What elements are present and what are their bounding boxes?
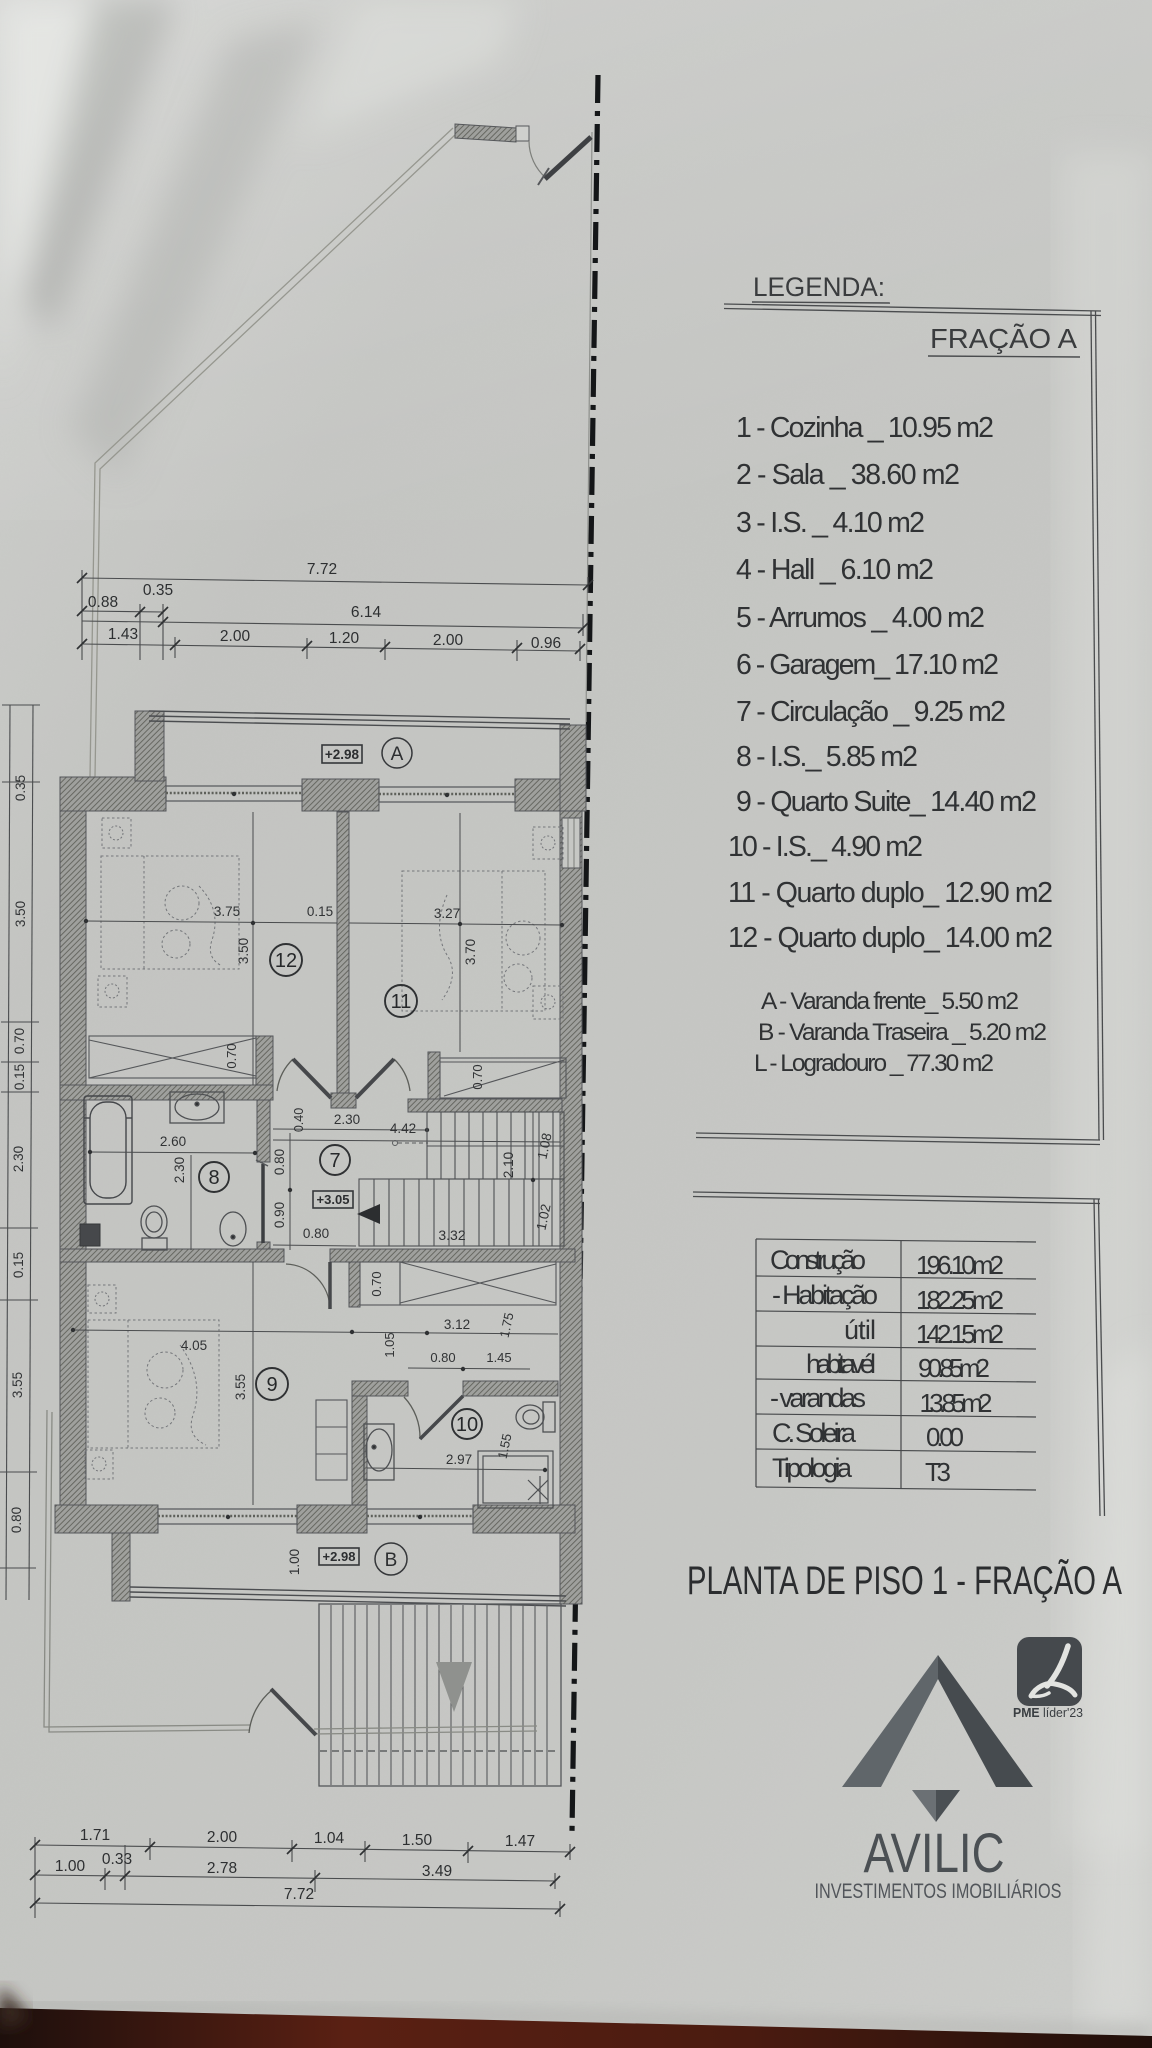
- svg-text:0.80: 0.80: [9, 1507, 24, 1533]
- svg-text:3.55: 3.55: [233, 1374, 248, 1400]
- svg-text:8 - I.S._ 5.85 m2: 8 - I.S._ 5.85 m2: [736, 741, 918, 773]
- svg-text:0.35: 0.35: [143, 582, 173, 599]
- svg-text:2.00: 2.00: [207, 1829, 238, 1846]
- svg-text:2.30: 2.30: [11, 1146, 26, 1172]
- svg-text:0.70: 0.70: [224, 1043, 239, 1068]
- svg-text:90.85m2: 90.85m2: [918, 1353, 990, 1383]
- svg-text:2.97: 2.97: [446, 1452, 472, 1467]
- svg-text:1.04: 1.04: [314, 1830, 345, 1847]
- svg-text:+2.98: +2.98: [323, 1549, 356, 1564]
- svg-text:4.42: 4.42: [390, 1121, 416, 1136]
- svg-text:6.14: 6.14: [351, 604, 382, 621]
- svg-text:LEGENDA:: LEGENDA:: [753, 272, 885, 302]
- svg-text:0.15: 0.15: [307, 904, 333, 919]
- svg-text:AVILIC: AVILIC: [864, 1821, 1005, 1884]
- svg-text:11 - Quarto duplo_ 12.90 m2: 11 - Quarto duplo_ 12.90 m2: [728, 877, 1053, 909]
- svg-text:2.10: 2.10: [501, 1152, 516, 1178]
- svg-text:3.50: 3.50: [236, 938, 251, 964]
- svg-text:9: 9: [266, 1374, 277, 1396]
- svg-text:Tipologia: Tipologia: [772, 1453, 853, 1483]
- svg-text:0.70: 0.70: [470, 1064, 485, 1089]
- svg-text:7.72: 7.72: [307, 561, 337, 578]
- svg-text:PME líder'23: PME líder'23: [1013, 1706, 1083, 1720]
- svg-text:3.27: 3.27: [434, 906, 460, 921]
- svg-text:10 - I.S._ 4.90 m2: 10 - I.S._ 4.90 m2: [728, 831, 923, 863]
- svg-text:7: 7: [329, 1150, 340, 1172]
- svg-text:0.90: 0.90: [272, 1202, 287, 1228]
- svg-text:2 - Sala _ 38.60 m2: 2 - Sala _ 38.60 m2: [736, 459, 960, 491]
- svg-text:1.20: 1.20: [329, 630, 360, 647]
- svg-text:1.05: 1.05: [382, 1332, 397, 1357]
- svg-text:3.55: 3.55: [10, 1372, 25, 1398]
- svg-text:0.80: 0.80: [272, 1149, 287, 1175]
- svg-text:1.50: 1.50: [402, 1832, 433, 1849]
- svg-text:2.30: 2.30: [172, 1157, 187, 1183]
- svg-text:2.78: 2.78: [207, 1860, 237, 1877]
- svg-text:- Habitação: - Habitação: [772, 1280, 878, 1310]
- svg-text:142.15m2: 142.15m2: [916, 1319, 1004, 1349]
- svg-text:Construção: Construção: [770, 1245, 866, 1275]
- svg-text:1.00: 1.00: [287, 1549, 302, 1575]
- svg-text:3.12: 3.12: [444, 1317, 470, 1332]
- svg-text:0.00: 0.00: [926, 1422, 964, 1452]
- svg-text:2.00: 2.00: [433, 632, 464, 649]
- svg-text:13.85m2: 13.85m2: [920, 1388, 993, 1418]
- svg-text:+2.98: +2.98: [325, 747, 360, 762]
- svg-text:0.33: 0.33: [102, 1851, 132, 1868]
- svg-text:- varandas: - varandas: [770, 1383, 866, 1413]
- svg-text:0.40: 0.40: [292, 1108, 306, 1132]
- svg-text:B - Varanda Traseira _ 5.20 m2: B - Varanda Traseira _ 5.20 m2: [758, 1019, 1047, 1046]
- svg-text:1.43: 1.43: [108, 626, 138, 643]
- svg-text:10: 10: [456, 1414, 478, 1436]
- svg-text:0.80: 0.80: [303, 1226, 329, 1241]
- svg-text:0.80: 0.80: [430, 1350, 455, 1365]
- svg-text:7 - Circulação _ 9.25 m2: 7 - Circulação _ 9.25 m2: [736, 696, 1006, 728]
- svg-text:PLANTA DE PISO 1 - FRAÇÃO A: PLANTA DE PISO 1 - FRAÇÃO A: [687, 1558, 1122, 1603]
- svg-text:0.15: 0.15: [11, 1252, 26, 1278]
- svg-text:0.88: 0.88: [88, 594, 118, 611]
- svg-text:2.30: 2.30: [334, 1112, 360, 1127]
- svg-text:4.05: 4.05: [181, 1338, 207, 1353]
- svg-text:0.35: 0.35: [13, 775, 28, 801]
- svg-text:5 - Arrumos _ 4.00 m2: 5 - Arrumos _ 4.00 m2: [736, 602, 985, 634]
- svg-text:3.49: 3.49: [422, 1863, 452, 1880]
- svg-text:habitavél: habitavél: [806, 1349, 876, 1379]
- svg-text:3.50: 3.50: [13, 901, 28, 927]
- svg-text:1.45: 1.45: [486, 1350, 511, 1365]
- svg-text:1.00: 1.00: [55, 1858, 86, 1875]
- svg-text:+3.05: +3.05: [317, 1192, 350, 1207]
- svg-text:L - Logradouro _ 77.30 m2: L - Logradouro _ 77.30 m2: [754, 1050, 994, 1077]
- svg-text:182.25m2: 182.25m2: [916, 1285, 1004, 1315]
- svg-text:8: 8: [208, 1167, 219, 1189]
- svg-text:1 - Cozinha _ 10.95 m2: 1 - Cozinha _ 10.95 m2: [736, 412, 994, 444]
- svg-text:2.60: 2.60: [160, 1134, 186, 1149]
- svg-text:3 - I.S. _ 4.10 m2: 3 - I.S. _ 4.10 m2: [736, 507, 925, 539]
- svg-text:3.75: 3.75: [214, 904, 240, 919]
- svg-text:1.71: 1.71: [80, 1827, 110, 1844]
- svg-text:0.70: 0.70: [369, 1271, 384, 1296]
- svg-text:B: B: [385, 1550, 398, 1571]
- svg-text:3.70: 3.70: [463, 939, 478, 965]
- svg-text:7.72: 7.72: [284, 1886, 314, 1903]
- svg-text:A: A: [391, 744, 404, 765]
- svg-text:196.10m2: 196.10m2: [916, 1250, 1004, 1280]
- svg-text:C. Soleira: C. Soleira: [772, 1418, 857, 1448]
- svg-text:INVESTIMENTOS IMOBILIÁRIOS: INVESTIMENTOS IMOBILIÁRIOS: [815, 1878, 1062, 1903]
- svg-text:0.70: 0.70: [12, 1028, 27, 1054]
- svg-text:0.96: 0.96: [531, 635, 561, 652]
- svg-text:2.00: 2.00: [220, 628, 251, 645]
- svg-text:útil: útil: [844, 1315, 876, 1345]
- svg-text:1.47: 1.47: [505, 1833, 535, 1850]
- svg-text:0.15: 0.15: [12, 1064, 27, 1090]
- svg-text:6 - Garagem_ 17.10 m2: 6 - Garagem_ 17.10 m2: [736, 649, 999, 681]
- svg-text:A - Varanda frente_ 5.50 m2: A - Varanda frente_ 5.50 m2: [761, 988, 1019, 1015]
- svg-text:11: 11: [391, 991, 412, 1013]
- svg-text:T3: T3: [925, 1457, 951, 1487]
- svg-text:9 - Quarto Suite_ 14.40 m2: 9 - Quarto Suite_ 14.40 m2: [736, 786, 1037, 818]
- svg-text:12 - Quarto duplo_ 14.00 m2: 12 - Quarto duplo_ 14.00 m2: [728, 922, 1053, 954]
- svg-text:FRAÇÃO A: FRAÇÃO A: [930, 323, 1077, 354]
- svg-text:12: 12: [275, 950, 297, 972]
- svg-text:4 - Hall _ 6.10 m2: 4 - Hall _ 6.10 m2: [736, 554, 934, 586]
- svg-text:3.32: 3.32: [438, 1227, 465, 1243]
